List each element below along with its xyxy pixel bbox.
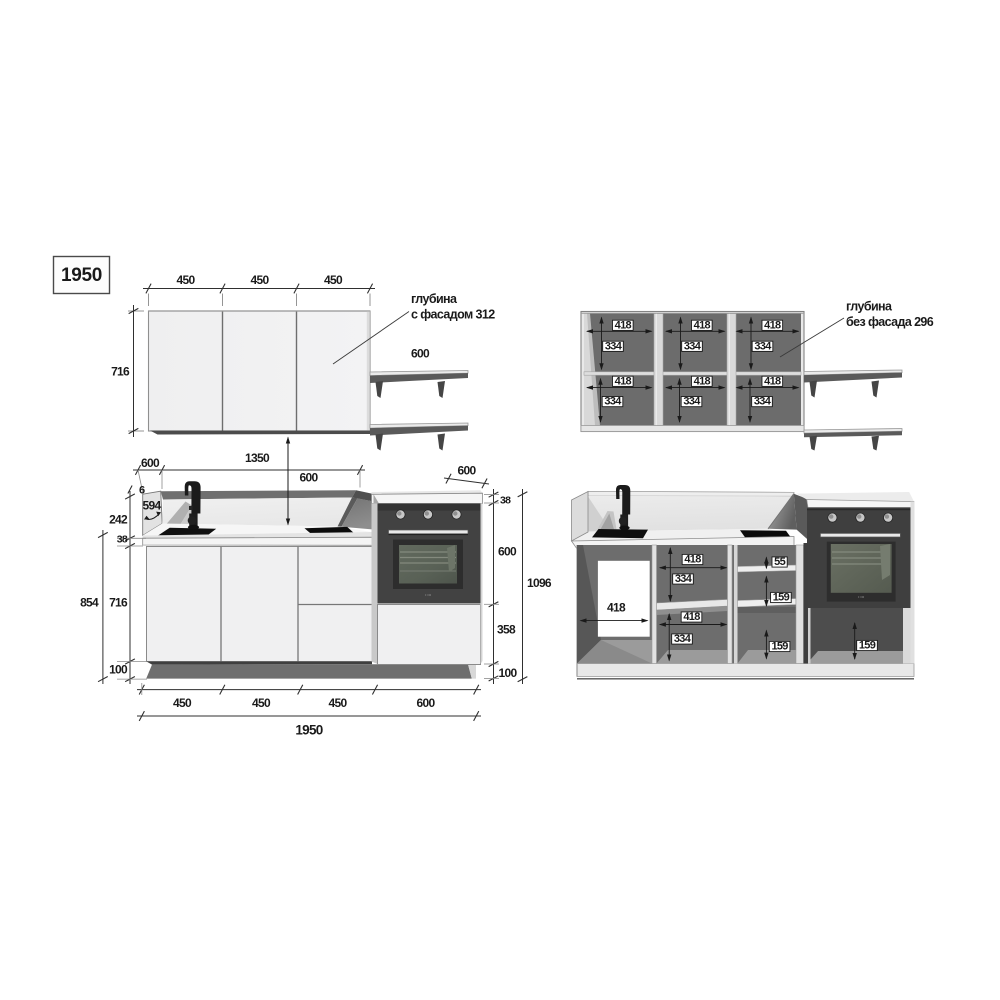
svg-text:418: 418 (764, 375, 781, 387)
svg-text:100: 100 (499, 666, 518, 680)
svg-text:1950: 1950 (61, 265, 102, 286)
svg-text:334: 334 (683, 396, 701, 408)
svg-text:854: 854 (80, 596, 99, 610)
svg-text:418: 418 (607, 601, 626, 615)
svg-text:334: 334 (604, 396, 622, 408)
svg-text:450: 450 (251, 273, 270, 287)
svg-text:716: 716 (111, 365, 130, 379)
svg-text:600: 600 (458, 464, 477, 478)
svg-text:334: 334 (754, 396, 772, 408)
svg-text:без фасада 296: без фасада 296 (846, 315, 934, 329)
svg-text:глубина: глубина (411, 292, 458, 306)
svg-text:594: 594 (143, 499, 162, 513)
svg-text:159: 159 (773, 592, 790, 604)
svg-text:450: 450 (177, 273, 196, 287)
svg-text:334: 334 (674, 633, 692, 645)
svg-text:· ···: · ··· (858, 595, 865, 601)
svg-text:600: 600 (300, 471, 319, 485)
svg-text:450: 450 (324, 273, 343, 287)
svg-text:418: 418 (694, 375, 711, 387)
svg-text:418: 418 (615, 375, 632, 387)
svg-text:600: 600 (417, 696, 436, 710)
svg-text:38: 38 (117, 534, 128, 546)
svg-text:450: 450 (329, 696, 348, 710)
svg-text:глубина: глубина (846, 300, 893, 314)
svg-text:159: 159 (859, 640, 876, 652)
svg-text:334: 334 (754, 340, 772, 352)
svg-text:1350: 1350 (245, 451, 270, 465)
svg-text:450: 450 (173, 696, 192, 710)
svg-text:358: 358 (497, 623, 516, 637)
svg-text:1096: 1096 (527, 576, 552, 590)
svg-text:· ···: · ··· (425, 593, 432, 599)
svg-text:38: 38 (500, 495, 511, 507)
svg-text:с фасадом 312: с фасадом 312 (411, 308, 495, 322)
svg-text:242: 242 (109, 513, 128, 527)
svg-text:418: 418 (684, 554, 701, 566)
svg-text:334: 334 (684, 340, 702, 352)
svg-text:418: 418 (694, 319, 711, 331)
svg-text:1950: 1950 (295, 723, 322, 738)
svg-text:334: 334 (605, 340, 623, 352)
svg-text:418: 418 (764, 319, 781, 331)
svg-text:450: 450 (252, 696, 271, 710)
svg-text:6: 6 (139, 485, 145, 497)
svg-text:55: 55 (774, 556, 785, 568)
svg-text:600: 600 (141, 456, 160, 470)
svg-text:418: 418 (683, 611, 700, 623)
svg-text:418: 418 (615, 319, 632, 331)
svg-text:334: 334 (675, 573, 693, 585)
svg-text:159: 159 (771, 641, 788, 653)
svg-text:600: 600 (498, 545, 517, 559)
svg-text:600: 600 (411, 347, 430, 361)
svg-text:100: 100 (109, 663, 128, 677)
svg-text:716: 716 (109, 596, 128, 610)
